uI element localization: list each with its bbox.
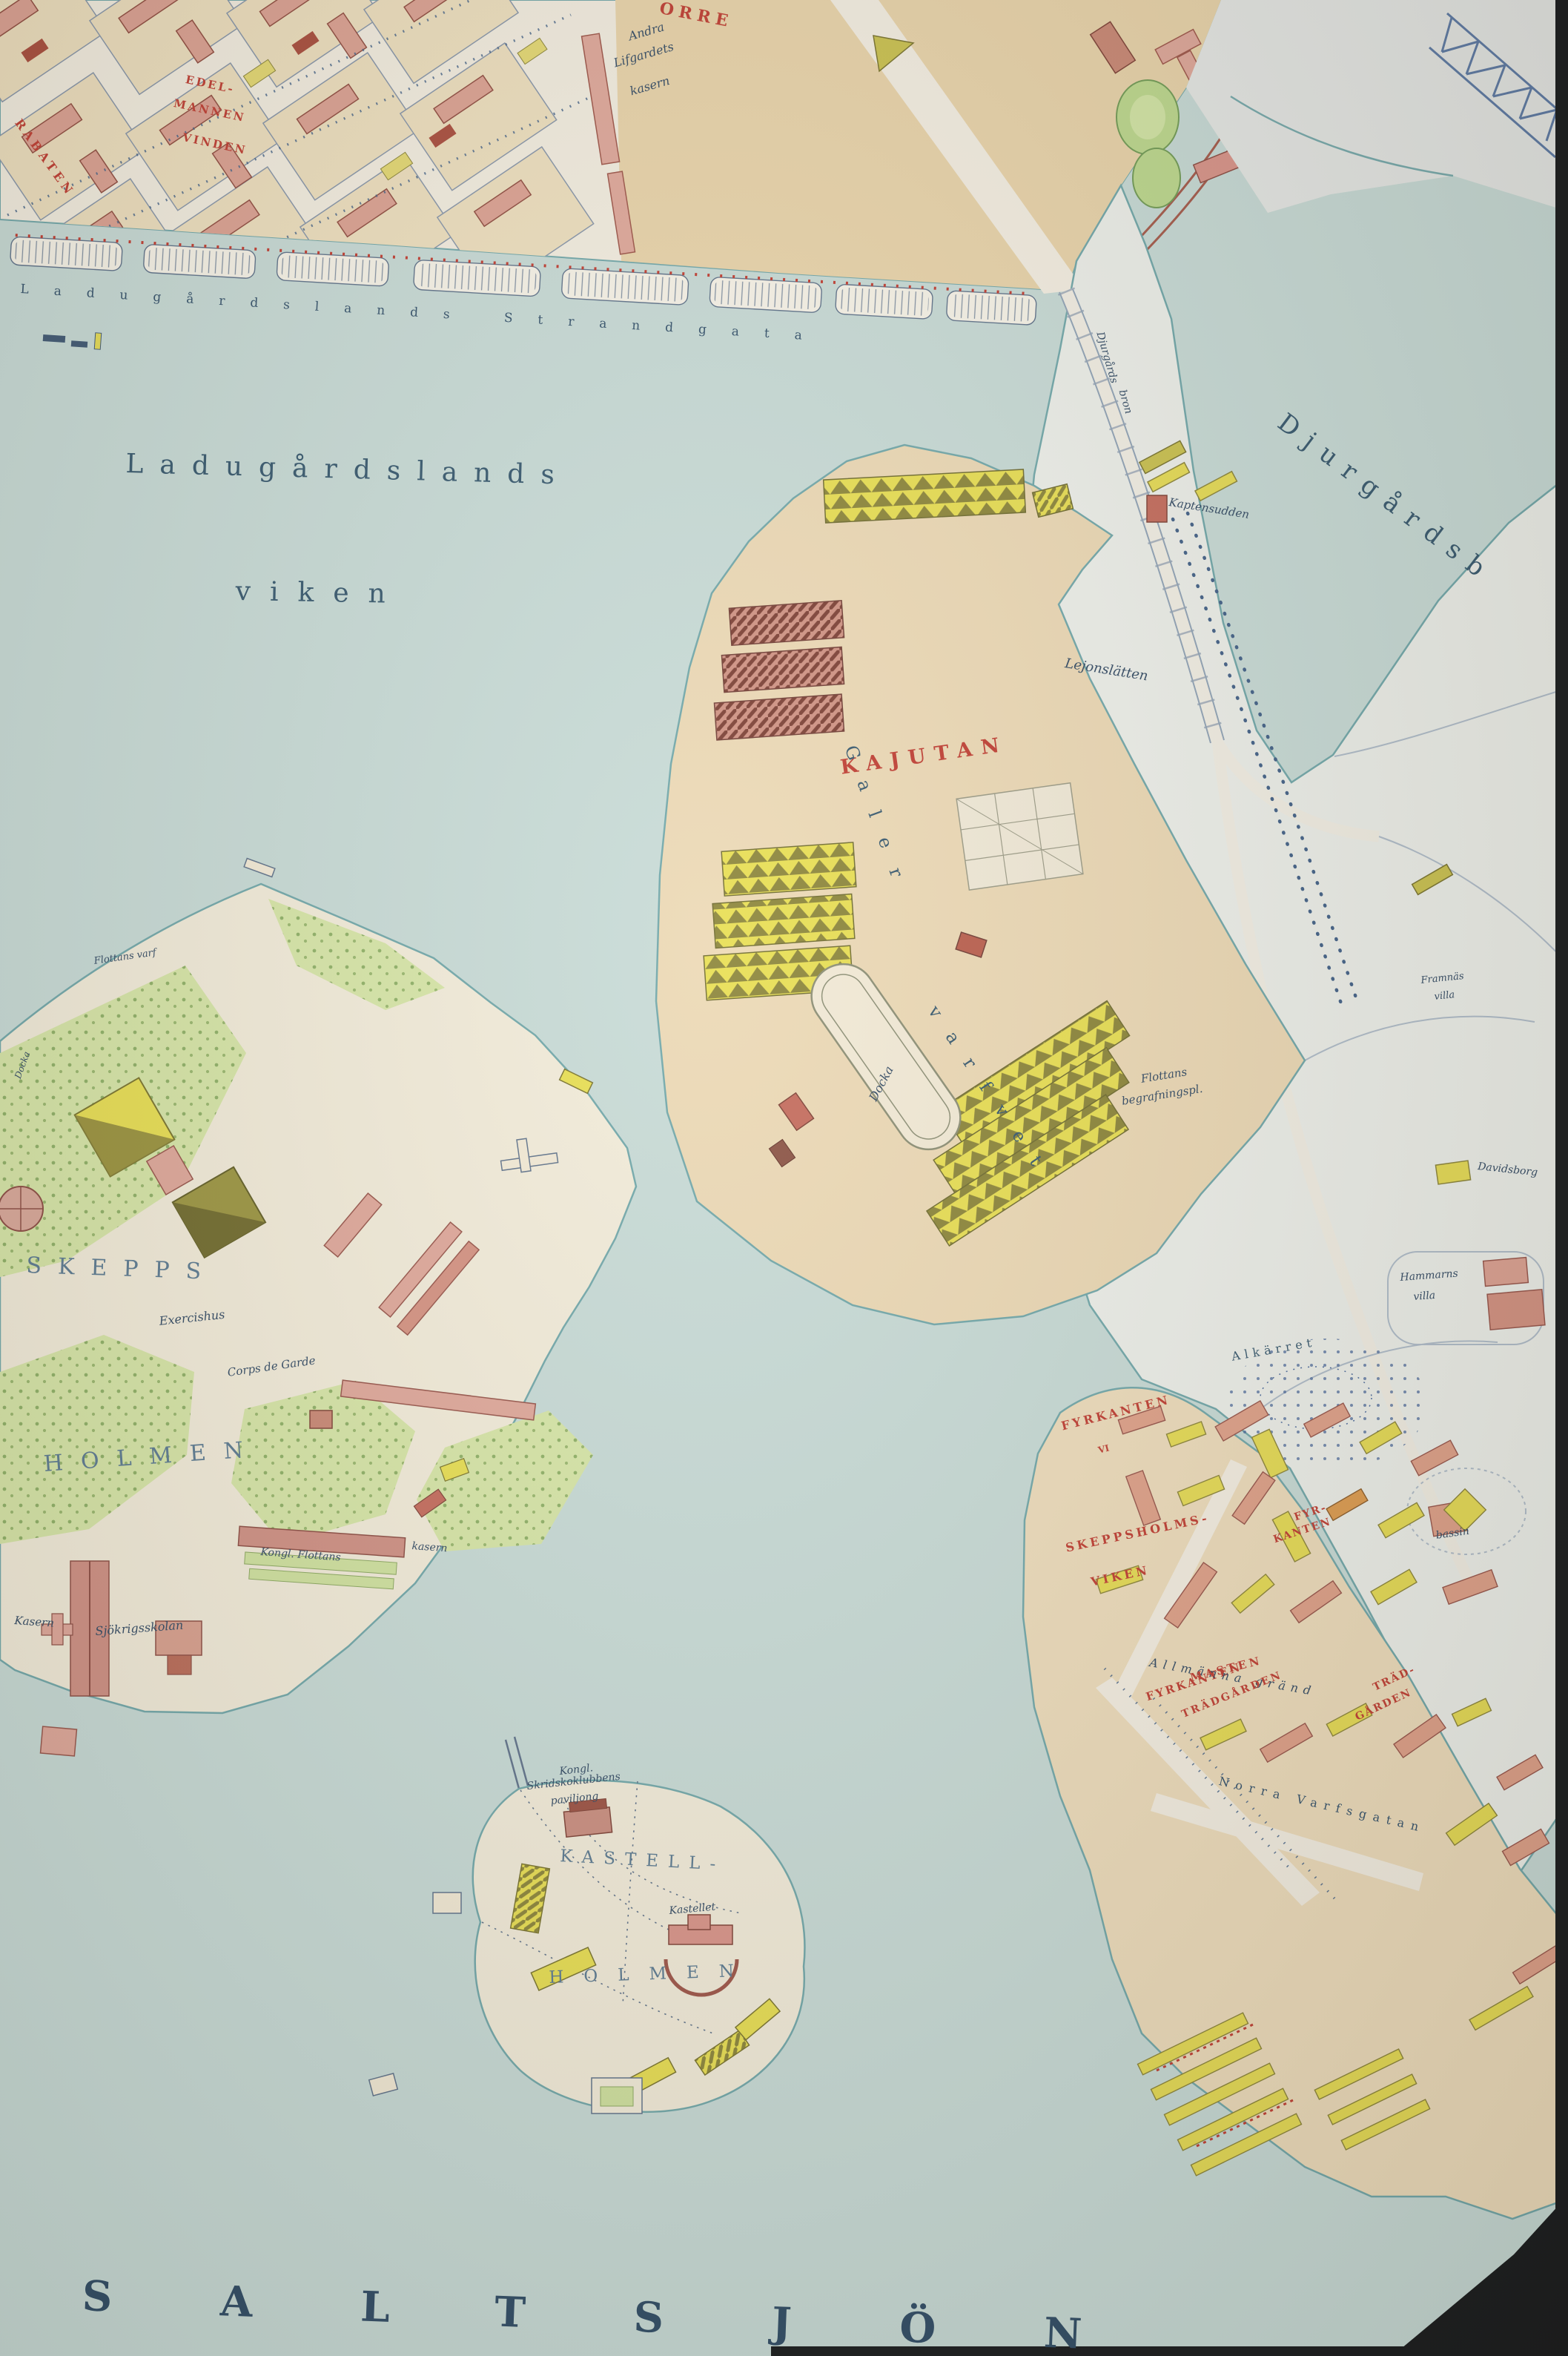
label-kasern: Kasern [14,1615,54,1629]
formal-garden [956,783,1083,890]
historical-harbour-map: Ladugårdslands viken Djurgårdsb SALTSJÖN… [0,0,1568,2356]
label-kongl-kasern: kasern [411,1541,448,1554]
label-framnas-villa-2: villa [1434,990,1455,1002]
label-ladugardslands-viken-2: viken [235,578,405,608]
west-pier [433,1893,461,1913]
label-fyrkanten-nw-num: VI [1097,1443,1110,1454]
photo-edge-right [1555,0,1568,2356]
label-hammarns-villa-2: villa [1413,1290,1436,1302]
map-canvas [0,0,1568,2356]
label-skepps: SKEPPS [26,1255,218,1284]
